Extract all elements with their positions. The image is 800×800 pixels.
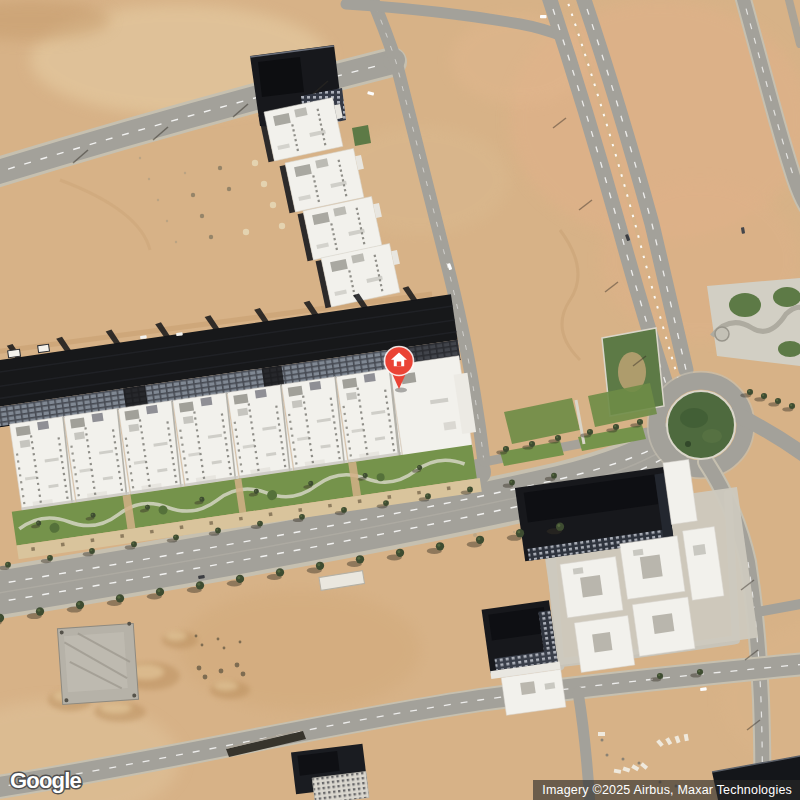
satellite-imagery[interactable]	[0, 0, 800, 800]
imagery-attribution: Imagery ©2025 Airbus, Maxar Technologies	[533, 780, 800, 800]
google-logo[interactable]: Google	[8, 767, 100, 795]
map-viewport[interactable]: Google Imagery ©2025 Airbus, Maxar Techn…	[0, 0, 800, 800]
google-logo-text: Google	[10, 768, 82, 793]
